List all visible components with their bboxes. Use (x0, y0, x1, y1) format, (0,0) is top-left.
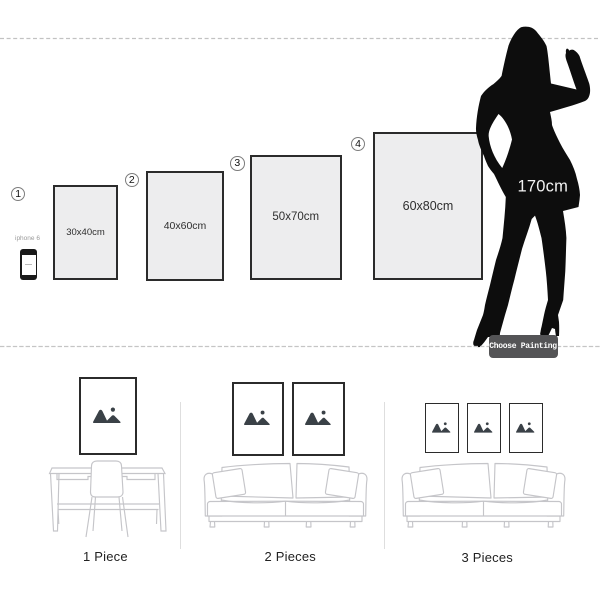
svg-text:170cm: 170cm (518, 178, 569, 196)
